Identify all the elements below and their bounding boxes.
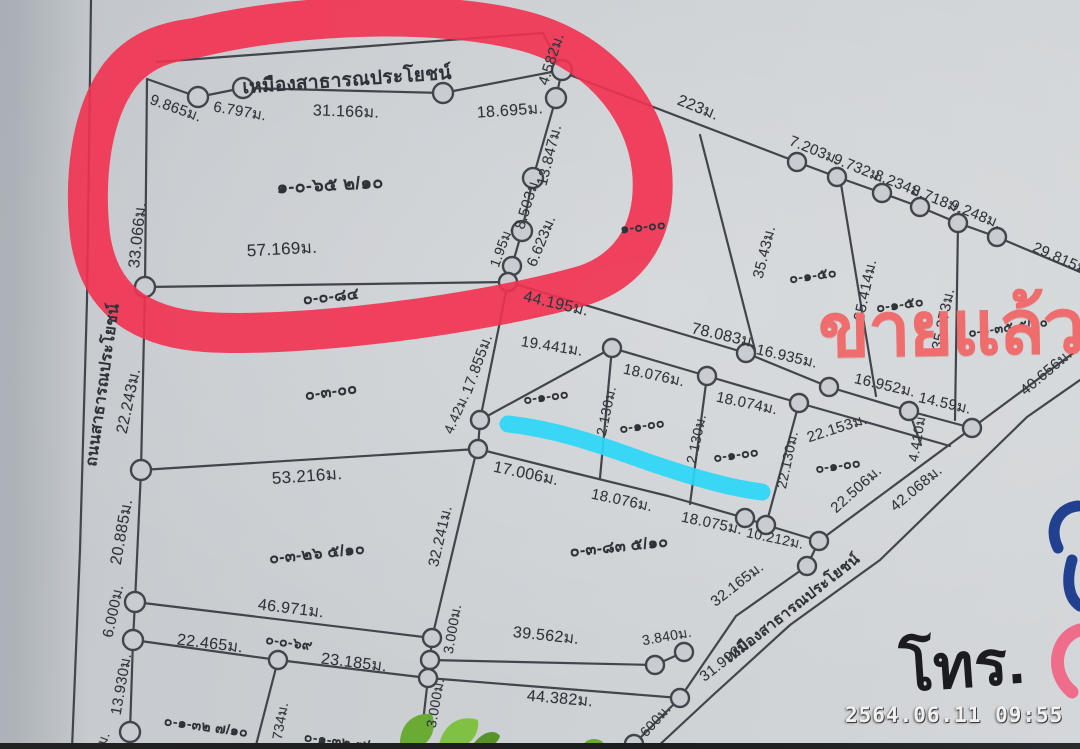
plot-number-label: ๐-๓-๘๓ ๕/๑๐ <box>569 529 670 564</box>
measurement-label: 44.195ม. <box>521 284 591 323</box>
camera-timestamp: 2564.06.11 09:55 <box>845 703 1063 727</box>
measurement-label: 31.166ม. <box>312 98 379 125</box>
plot-number-label: ๐-๑-๐๐ <box>618 412 666 440</box>
measurement-label: 35.43ม. <box>746 223 782 281</box>
measurement-label: 1.95ม. <box>484 223 519 270</box>
sold-stamp-text: ขายแล้ว <box>817 288 1080 370</box>
measurement-label: 9.248ม. <box>947 193 1006 235</box>
plot-number-label: ๐-๓-๒๖ ๕/๑๐ <box>268 537 366 572</box>
measurement-label: 32.241ม. <box>421 503 458 569</box>
measurement-label: 4.410ม. <box>903 410 933 463</box>
plot-number-label: ๐-๑-๕๐ <box>788 262 838 290</box>
measurement-label: 57.169ม. <box>246 234 318 265</box>
measurement-label: 29.815ม. <box>1029 235 1080 282</box>
plot-number-label: ๑-๐-๖๕ ๒/๑๐ <box>276 167 384 202</box>
measurement-label: 734ม. <box>267 700 295 741</box>
measurement-label: 3.000ม. <box>421 676 451 729</box>
measurement-label: 42.068ม. <box>884 459 947 517</box>
plot-number-label: ๐-๐-๖๙ <box>264 629 314 657</box>
measurement-label: 18.076ม. <box>589 482 655 518</box>
measurement-label: 4.582ม. <box>531 30 570 88</box>
measurement-label: 2.130ม. <box>681 412 713 466</box>
measurement-label: 22.153ม. <box>804 407 871 449</box>
measurement-label: 18.076ม. <box>621 357 687 393</box>
road-name-label: เหมืองสาธารณประโยชน์ <box>241 58 452 103</box>
plot-number-label: ๑-๐-๐๐ <box>619 214 667 241</box>
measurement-label: 16.935ม. <box>754 337 820 374</box>
measurement-label: 6.000ม. <box>96 582 131 640</box>
measurement-label: 3.840ม. <box>640 622 693 652</box>
measurement-label: 78.083ม. <box>689 316 759 355</box>
measurement-label: 13.930ม. <box>104 651 138 717</box>
measurement-label: 4.42ม. <box>438 390 475 437</box>
measurement-label: 46.971ม. <box>257 593 326 626</box>
plot-number-label: ๐-๑-๓๒ ๗/๑๐ <box>163 710 250 744</box>
measurement-label: 223ม. <box>673 88 722 127</box>
plot-number-label: ๐-๓-๐๐ <box>303 376 359 408</box>
measurement-label: 18.074ม. <box>714 385 780 421</box>
measurement-label: 22.130ม. <box>771 429 805 491</box>
measurement-label: 2.130ม. <box>591 384 623 438</box>
measurement-label: 44.382ม. <box>526 684 594 715</box>
plot-number-label: ๐-๑-๐๐ <box>712 441 760 469</box>
measurement-label: 39.562ม. <box>512 620 581 652</box>
measurement-label: 53.216ม. <box>271 460 343 492</box>
measurement-label: 17.855ม. <box>455 331 499 398</box>
measurement-label: 10.212ม. <box>744 522 806 556</box>
measurement-label: 20.885ม. <box>104 497 140 567</box>
measurement-label: 18.075ม. <box>679 505 745 541</box>
measurement-label: 17.006ม. <box>491 455 561 493</box>
land-survey-photo: เหมืองสาธารณประโยชน์9.865ม.6.797ม.31.166… <box>0 0 1080 749</box>
measurement-label: 33.066ม. <box>122 201 154 270</box>
tel-text: โทร. <box>898 632 1027 703</box>
measurement-label: 22.465ม. <box>176 628 245 661</box>
measurement-label: 19.441ม. <box>519 329 584 362</box>
measurement-label: 23.185ม. <box>320 647 389 680</box>
measurement-label: 9.865ม. <box>147 88 206 129</box>
measurement-label: 18.695ม. <box>476 96 544 126</box>
measurement-label: 600ม. <box>635 700 677 743</box>
measurement-label: 3.000ม. <box>438 602 468 655</box>
photo-bottom-edge <box>0 743 1080 749</box>
measurement-label: 32.165ม. <box>705 555 769 612</box>
plot-number-label: ๐-๑-๐๐ <box>522 383 570 411</box>
plot-number-label: ๐-๐-๘๔ <box>302 282 361 313</box>
